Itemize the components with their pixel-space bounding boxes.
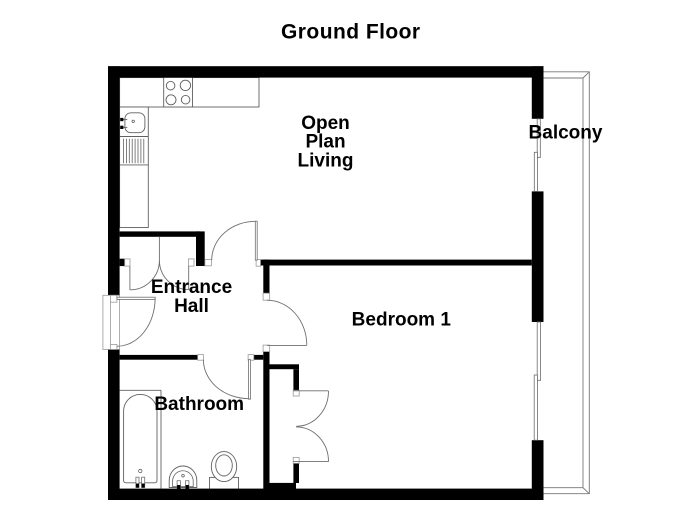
svg-text:Entrance: Entrance — [151, 277, 232, 298]
svg-text:Balcony: Balcony — [529, 122, 603, 143]
svg-text:Living: Living — [298, 150, 354, 171]
svg-text:Bathroom: Bathroom — [154, 394, 244, 415]
svg-text:Bedroom 1: Bedroom 1 — [352, 310, 452, 331]
svg-text:Hall: Hall — [174, 296, 209, 317]
svg-text:Ground Floor: Ground Floor — [281, 21, 421, 44]
